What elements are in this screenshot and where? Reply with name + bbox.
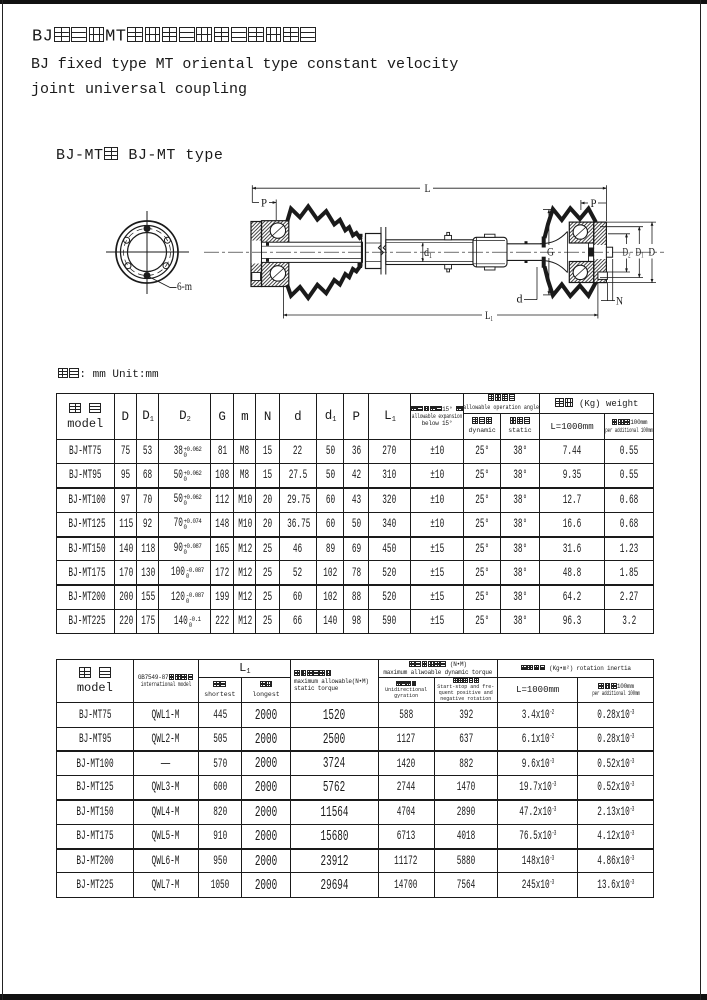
svg-text:6-m: 6-m [177, 279, 193, 293]
svg-text:N: N [616, 296, 624, 308]
svg-text:L: L [425, 183, 431, 195]
svg-text:L1: L1 [485, 308, 493, 323]
svg-text:P: P [261, 197, 267, 209]
svg-text:d: d [517, 294, 523, 306]
svg-text:D2: D2 [623, 247, 631, 260]
svg-text:D1: D1 [636, 247, 644, 260]
svg-text:P: P [591, 198, 597, 210]
